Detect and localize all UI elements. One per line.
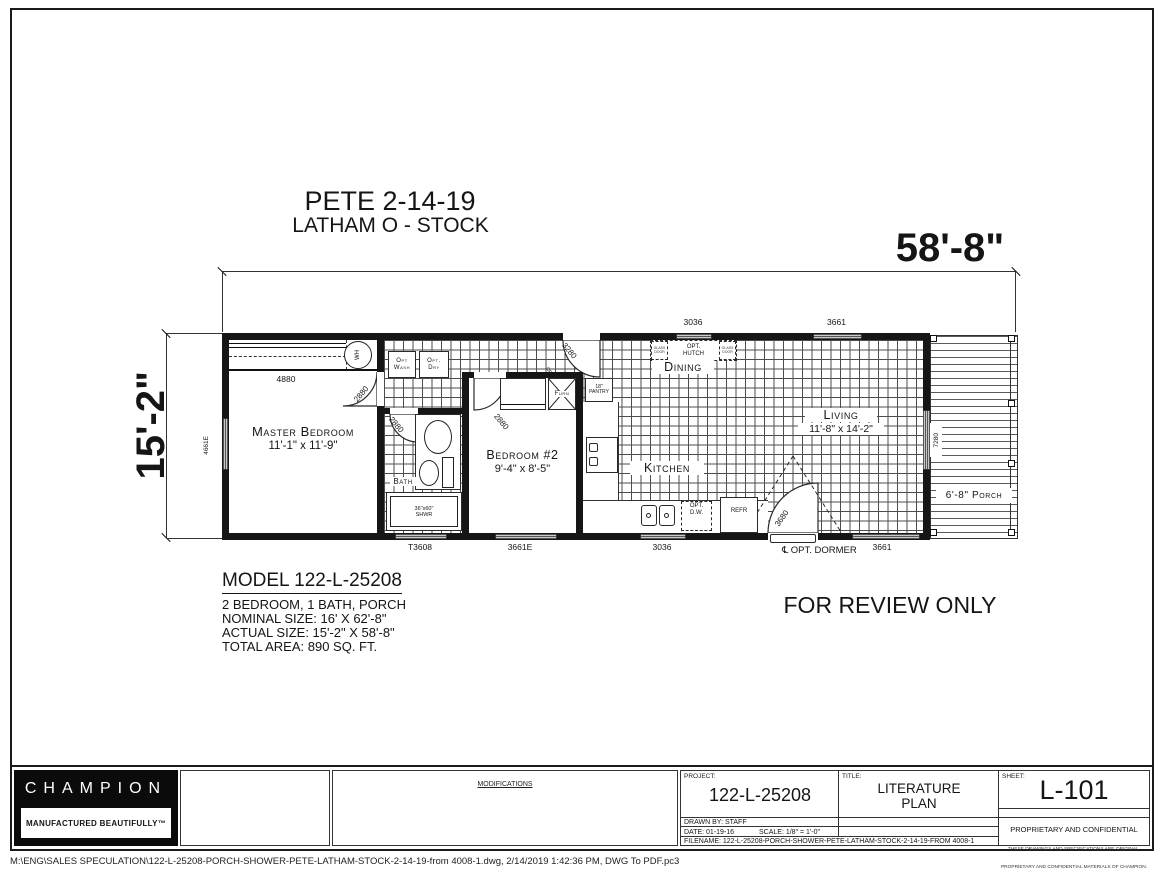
patio-door-7280 [923,410,930,470]
window-3661e [495,534,557,539]
refrigerator [720,497,758,533]
wall [377,333,384,540]
rear-door-swing [768,483,818,533]
proprietary-note: PROPRIETARY AND CONFIDENTIAL [1010,825,1138,834]
closet-door-line [501,404,545,405]
bedroom2-closet [500,378,546,410]
legal-line2: PROPRIETARY AND CONFIDENTIAL MATERIALS O… [1001,865,1147,870]
titleblock-empty-cell [180,770,330,846]
closet-dim: 4880 [266,374,306,384]
sheet-cell: SHEET: L-101 PROPRIETARY AND CONFIDENTIA… [998,770,1150,846]
toilet-bowl [419,460,439,486]
refrigerator-label: REFR [724,508,754,515]
model-line: ACTUAL SIZE: 15'-2" X 58'-8" [222,625,395,640]
opt-washer: Opt Wash [388,351,416,378]
sink-drain [646,513,651,518]
dining-label: Dining [652,360,714,374]
porch-post [1008,529,1015,536]
shower: 36"x60" SHWR [386,492,462,531]
water-heater: WH [344,341,372,369]
model-line: TOTAL AREA: 890 SQ. FT. [222,639,377,654]
kitchen-label: Kitchen [630,461,704,475]
bedroom2-size: 9'-4" x 8'-5" [469,463,576,475]
master-bedroom-label: Master Bedroom [228,424,378,439]
model-line: 2 BEDROOM, 1 BATH, PORCH [222,597,406,612]
drawing-sheet: PETE 2-14-19 LATHAM O - STOCK 58'-8" 15'… [0,0,1164,877]
wall [462,372,469,540]
model-line: NOMINAL SIZE: 16' X 62'-8" [222,611,386,626]
window-t3608 [395,534,447,539]
model-title: MODEL 122-L-25208 [222,570,402,594]
top-window-dim: 3661 [813,317,860,327]
legal-line1: THESE DRAWINGS AND SPECIFICATIONS ARE OR… [1008,847,1140,852]
door-opening [390,408,418,414]
filename-value: FILENAME: 122-L-25208-PORCH-SHOWER-PETE-… [684,838,974,845]
window-3036-top [676,334,712,339]
bedroom2-label: Bedroom #2 [469,448,576,462]
project-label: PROJECT: [684,773,715,780]
sheet-divider [999,808,1149,809]
living-size: 11'-8" x 14'-2" [798,423,884,435]
opt-dormer-label: ℄ OPT. DORMER [782,545,857,556]
porch-post [930,529,937,536]
sink-drain [664,513,669,518]
porch-label: 6'-8" Porch [936,488,1012,503]
porch-post [1008,460,1015,467]
hutch-label: OPT. HUTCH [670,341,717,360]
window-3036-bottom [640,534,686,539]
range-burner [589,443,598,452]
water-heater-label: WH [355,350,361,360]
bottom-window-dim: 3661E [498,542,542,552]
window-3661-bottom [852,534,920,539]
bottom-window-dim: T3608 [398,542,442,552]
filename-row: FILENAME: 122-L-25208-PORCH-SHOWER-PETE-… [680,836,1000,846]
toilet-tank [442,457,454,488]
master-bedroom-size: 11'-1" x 11'-9" [228,440,378,452]
patio-door-label: 7280 [930,423,942,457]
closet-front-wall [229,369,377,371]
porch-rail [1010,336,1011,536]
modifications-label: MODIFICATIONS [477,781,532,788]
porch-deck [930,335,1018,539]
door-opening [377,372,384,406]
hutch-glass-door: GLASS DOOR [719,341,736,360]
left-window-label: 4661E [200,426,212,464]
champion-logo: CHAMPION MANUFACTURED BEAUTIFULLY™ [14,770,178,846]
hutch-glass-door: GLASS DOOR [651,341,668,360]
top-window-dim: 3036 [676,317,710,327]
title-cell: TITLE: LITERATURE PLAN [838,770,1000,818]
rear-door-step [770,534,816,543]
porch-post [930,335,937,342]
door-opening [563,333,600,340]
range-burner [589,457,598,466]
brand-tagline-strip: MANUFACTURED BEAUTIFULLY™ [21,808,171,838]
closet-shelf-line [229,343,346,344]
porch-post [1008,335,1015,342]
furnace-label: Furn [555,391,570,397]
bottom-window-dim: 3036 [640,542,684,552]
living-label: Living [805,408,877,422]
bottom-window-dim: 3661 [860,542,904,552]
furnace: Furn [548,378,576,410]
project-cell: PROJECT: 122-L-25208 [680,770,840,818]
date-value: DATE: 01-19-16 [684,829,734,836]
review-note: FOR REVIEW ONLY [770,592,1010,619]
closet-rod-line [229,356,346,357]
scale-value: SCALE: 1/8" = 1'-0" [759,829,820,836]
modifications-cell: MODIFICATIONS [332,770,678,846]
closet-shelf-line [229,347,346,348]
sheet-title-line2: PLAN [901,796,936,811]
sheet-divider [999,817,1149,818]
pantry: 18" PANTRY [585,378,613,402]
file-path-footer: M:\ENG\SALES SPECULATION\122-L-25208-POR… [10,856,679,867]
opt-dishwasher: OPT. D.W. [681,501,712,531]
sheet-title-line1: LITERATURE [877,781,960,796]
bath-sink [424,420,452,454]
brand-name: CHAMPION [14,776,178,802]
wall [576,372,583,540]
porch-post [1008,400,1015,407]
sheet-number: L-101 [1039,775,1108,806]
bath-label: Bath [390,477,416,486]
window-3661-top [813,334,862,339]
project-number: 122-L-25208 [709,785,811,806]
opt-dryer: Opt. Dry [419,351,449,378]
